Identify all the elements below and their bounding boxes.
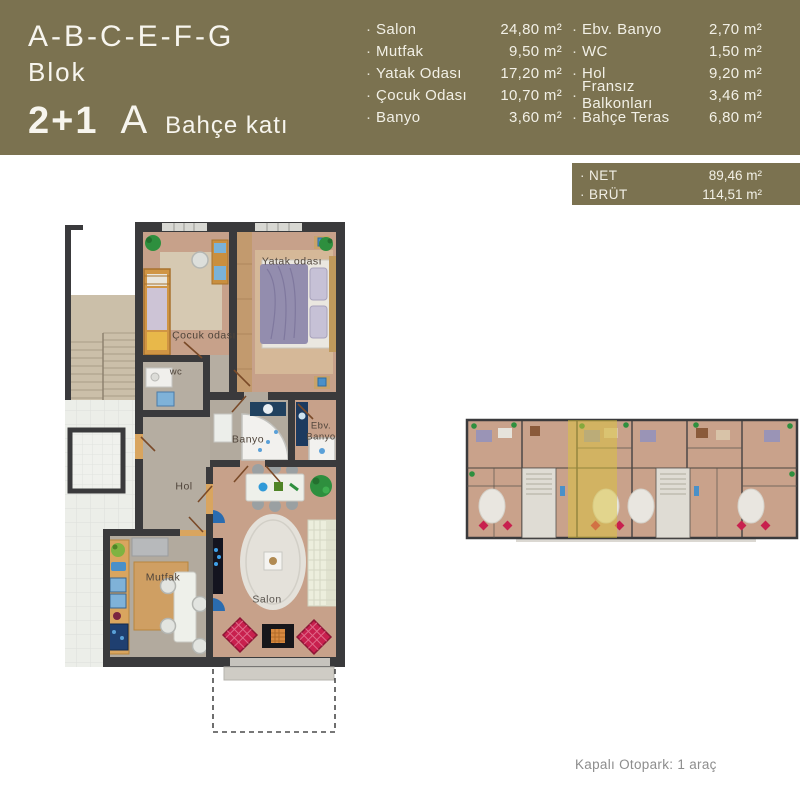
room-area: 3,46 m² <box>709 87 762 104</box>
building-overview-graphic <box>464 412 800 548</box>
room-row: ·Yatak Odası17,20 m² <box>366 62 562 84</box>
room-area: 9,50 m² <box>509 43 562 60</box>
room-row: ·Bahçe Teras6,80 m² <box>572 106 762 128</box>
bullet: · <box>572 65 582 82</box>
room-label-ebv-banyo-2: Banyo <box>306 432 335 443</box>
totals-row-net: ·NET89,46 m² <box>572 166 800 185</box>
bullet: · <box>572 21 582 38</box>
floor-name: Bahçe katı <box>165 112 288 140</box>
room-row: ·Salon24,80 m² <box>366 18 562 40</box>
bullet: · <box>366 65 376 82</box>
room-label-cocuk-odasi: Çocuk odası <box>172 331 236 342</box>
room-area: 9,20 m² <box>709 65 762 82</box>
room-row: ·Ebv. Banyo2,70 m² <box>572 18 762 40</box>
room-label-hol: Hol <box>175 482 192 493</box>
room-label-salon: Salon <box>252 595 281 606</box>
bullet: · <box>572 43 582 60</box>
floor-plan-graphic <box>62 214 346 754</box>
room-label: Bahçe Teras <box>582 109 709 126</box>
room-area: 1,50 m² <box>709 43 762 60</box>
bullet: · <box>366 43 376 60</box>
unit-letter: A <box>120 98 147 143</box>
room-area: 24,80 m² <box>500 21 562 38</box>
parking-info: Kapalı Otopark: 1 araç <box>575 757 717 772</box>
room-label-ebv-banyo-1: Ebv. <box>311 421 331 432</box>
room-area: 2,70 m² <box>709 21 762 38</box>
bullet: · <box>572 109 582 126</box>
room-list-column-2: ·Ebv. Banyo2,70 m² ·WC1,50 m² ·Hol9,20 m… <box>572 18 762 128</box>
room-label: WC <box>582 43 709 60</box>
room-label: Salon <box>376 21 500 38</box>
unit-type: 2+1 <box>28 100 98 143</box>
room-area: 3,60 m² <box>509 109 562 126</box>
bullet: · <box>366 21 376 38</box>
bullet: · <box>580 187 589 202</box>
room-label: Fransız Balkonları <box>582 78 709 112</box>
room-label-yatak-odasi: Yatak odası <box>262 257 322 268</box>
totals-row-brut: ·BRÜT114,51 m² <box>572 185 800 204</box>
floor-plan: Yatak odası Çocuk odası wc Banyo Ebv. Ba… <box>62 214 346 754</box>
room-list-column-1: ·Salon24,80 m² ·Mutfak9,50 m² ·Yatak Oda… <box>366 18 562 128</box>
bullet: · <box>580 168 589 183</box>
block-title: A-B-C-E-F-G <box>28 20 289 54</box>
bullet: · <box>366 87 376 104</box>
header-band: A-B-C-E-F-G Blok 2+1 A Bahçe katı ·Salon… <box>0 0 800 155</box>
totals-label: BRÜT <box>589 187 702 202</box>
room-row: ·Banyo3,60 m² <box>366 106 562 128</box>
totals-value: 114,51 m² <box>702 187 762 202</box>
totals-box: ·NET89,46 m² ·BRÜT114,51 m² <box>572 163 800 205</box>
block-subtitle: Blok <box>28 56 289 88</box>
room-label: Banyo <box>376 109 509 126</box>
title-block: A-B-C-E-F-G Blok 2+1 A Bahçe katı <box>28 20 289 143</box>
bullet: · <box>572 87 582 104</box>
room-label-wc: wc <box>170 367 183 378</box>
room-label-mutfak: Mutfak <box>146 573 181 584</box>
room-row: ·WC1,50 m² <box>572 40 762 62</box>
totals-value: 89,46 m² <box>709 168 762 183</box>
bullet: · <box>366 109 376 126</box>
room-row: ·Çocuk Odası10,70 m² <box>366 84 562 106</box>
room-label: Ebv. Banyo <box>582 21 709 38</box>
room-area: 17,20 m² <box>500 65 562 82</box>
unit-title: 2+1 A Bahçe katı <box>28 98 289 143</box>
room-label: Yatak Odası <box>376 65 500 82</box>
room-row: ·Mutfak9,50 m² <box>366 40 562 62</box>
room-label: Çocuk Odası <box>376 87 500 104</box>
room-area: 10,70 m² <box>500 87 562 104</box>
building-overview <box>464 412 800 548</box>
room-label: Mutfak <box>376 43 509 60</box>
room-row: ·Fransız Balkonları3,46 m² <box>572 84 762 106</box>
totals-label: NET <box>589 168 709 183</box>
room-area: 6,80 m² <box>709 109 762 126</box>
room-label-banyo: Banyo <box>232 435 264 446</box>
